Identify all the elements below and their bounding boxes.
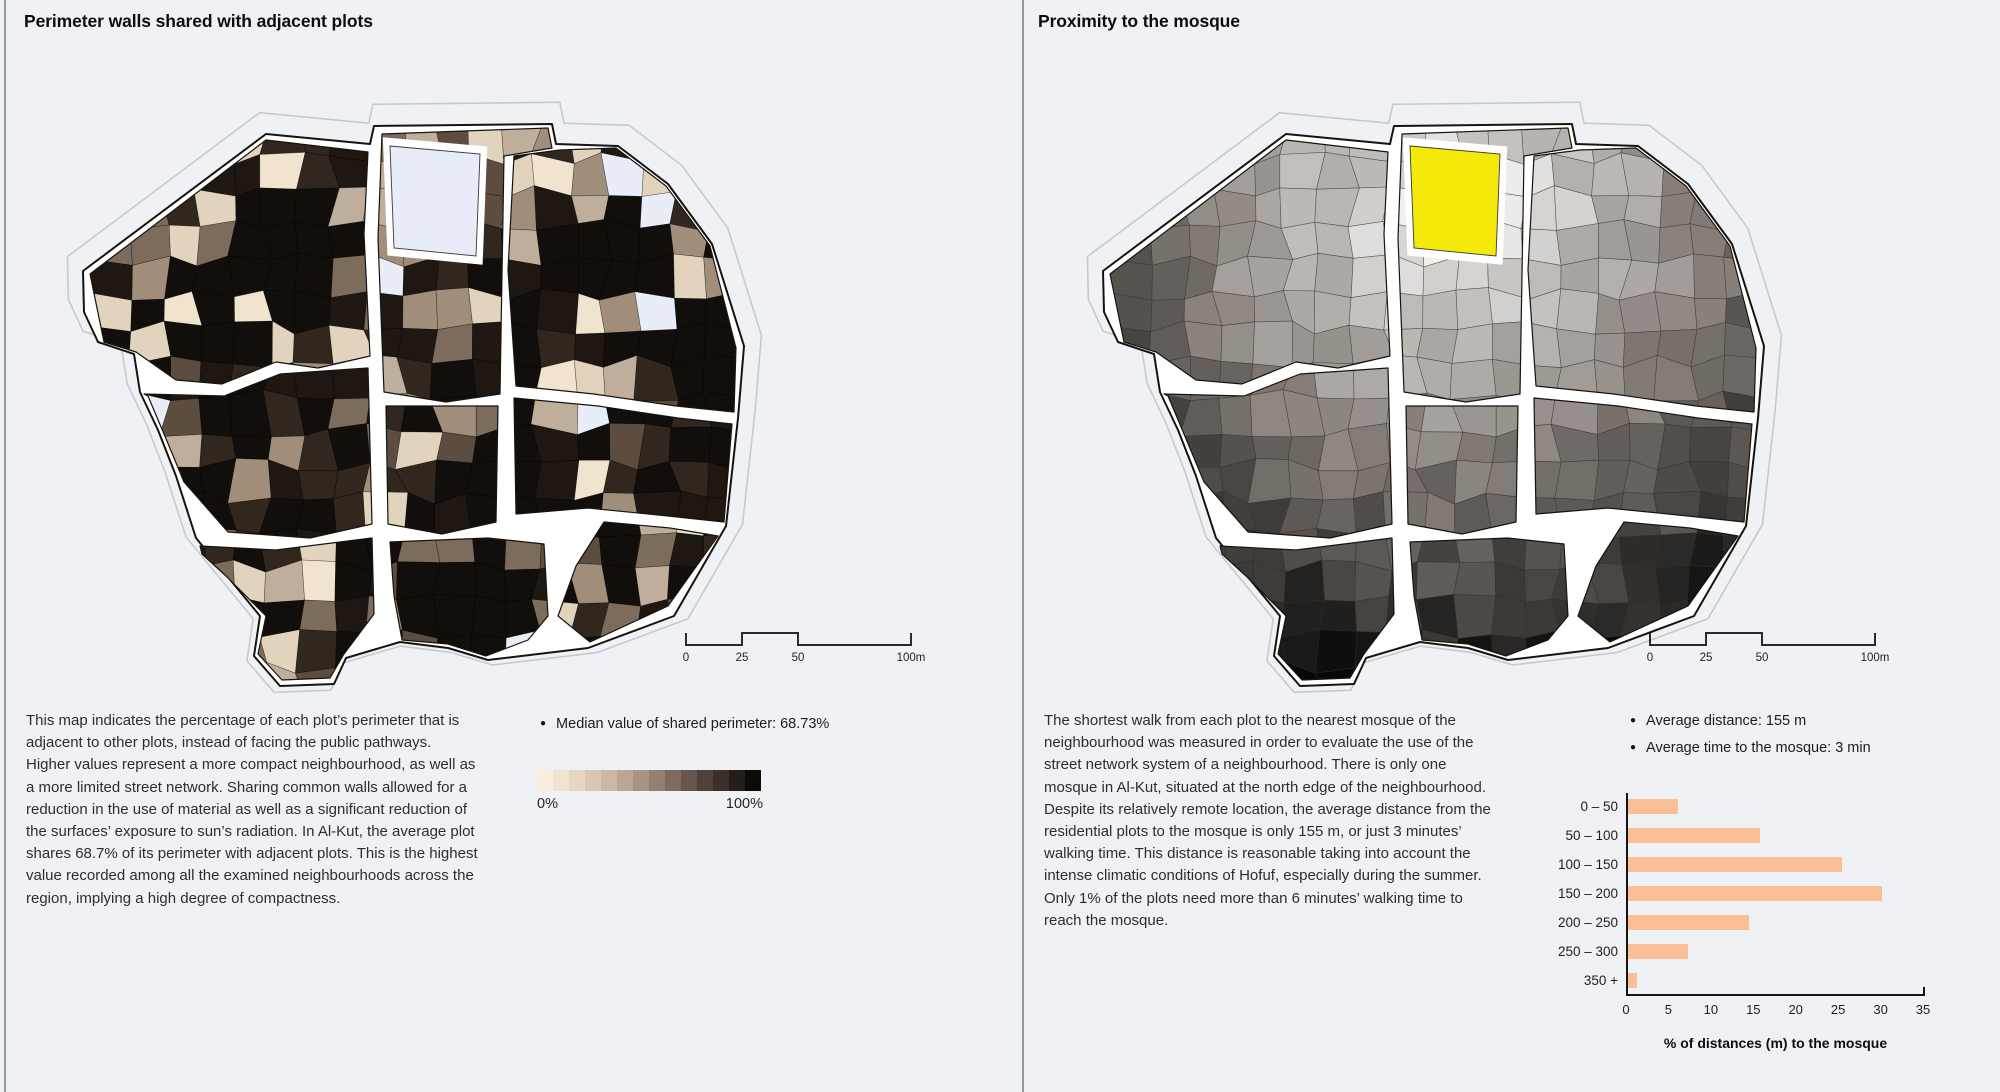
x-tick-label: 20: [1788, 1002, 1802, 1017]
x-tick-label: 5: [1665, 1002, 1672, 1017]
avg-distance-label: Average distance: 155 m: [1646, 711, 1806, 731]
color-scale-step: [697, 770, 713, 791]
left-panel-title: Perimeter walls shared with adjacent plo…: [24, 11, 373, 32]
mosque-proximity-map: [1048, 56, 1788, 706]
scale-bar-label: 100m: [897, 652, 926, 664]
scale-bar-label: 0: [683, 652, 689, 664]
panel-divider: [1022, 0, 1024, 1092]
bar: [1627, 944, 1688, 959]
median-legend: ● Median value of shared perimeter: 68.7…: [540, 714, 829, 734]
x-tick-label: 0: [1622, 1002, 1629, 1017]
page: Perimeter walls shared with adjacent plo…: [0, 0, 2000, 1092]
histogram-bars: 0 – 5050 – 100100 – 150150 – 200200 – 25…: [1548, 792, 1882, 995]
color-scale-step: [569, 770, 585, 791]
scale-bar-label: 100m: [1861, 652, 1890, 664]
perimeter-color-scale: [537, 770, 761, 791]
color-scale-step: [633, 770, 649, 791]
x-tick-label: 15: [1746, 1002, 1760, 1017]
bullet-icon: ●: [540, 714, 546, 734]
color-scale-step: [649, 770, 665, 791]
bar-row: 50 – 100: [1548, 821, 1882, 850]
color-scale-labels: 0% 100%: [537, 796, 763, 812]
bar-row: 100 – 150: [1548, 850, 1882, 879]
bar-row: 0 – 50: [1548, 792, 1882, 821]
bar: [1627, 886, 1882, 901]
scale-bar-label: 50: [1756, 652, 1769, 664]
bar: [1627, 915, 1749, 930]
bar-row: 350 +: [1548, 966, 1882, 995]
distance-histogram: 0 – 5050 – 100100 – 150150 – 200200 – 25…: [1548, 792, 1978, 1072]
right-scale-bar: 02550100m: [1642, 624, 1892, 666]
right-panel-title: Proximity to the mosque: [1038, 11, 1240, 32]
median-legend-label: Median value of shared perimeter: 68.73%: [556, 714, 829, 734]
x-tick-label: 35: [1916, 1002, 1930, 1017]
scale-bar-label: 0: [1647, 652, 1653, 664]
bullet-icon: ●: [1630, 738, 1636, 758]
right-description: The shortest walk from each plot to the …: [1044, 710, 1502, 932]
mosque-stats-legend: ● Average distance: 155 m ● Average time…: [1630, 711, 1871, 765]
mosque-plot: [1410, 146, 1500, 256]
left-border-line: [4, 0, 6, 1092]
bar-row: 200 – 250: [1548, 908, 1882, 937]
scale-bar-shape: [686, 633, 911, 645]
color-scale-step: [745, 770, 761, 791]
color-scale-step: [617, 770, 633, 791]
avg-time-legend: ● Average time to the mosque: 3 min: [1630, 738, 1871, 765]
bar-category-label: 350 +: [1548, 973, 1618, 988]
color-scale-step: [665, 770, 681, 791]
x-axis-end-tick: [1923, 987, 1925, 995]
bar: [1627, 828, 1760, 843]
x-tick-label: 30: [1873, 1002, 1887, 1017]
left-scale-bar: 02550100m: [678, 624, 928, 666]
bar-row: 250 – 300: [1548, 937, 1882, 966]
x-axis-line: [1626, 994, 1925, 996]
mosque-plot: [390, 146, 480, 256]
chart-x-axis-label: % of distances (m) to the mosque: [1626, 1035, 1925, 1051]
bar-category-label: 200 – 250: [1548, 915, 1618, 930]
shared-perimeter-map: [28, 56, 768, 706]
color-scale-step: [681, 770, 697, 791]
scale-bar-shape: [1650, 633, 1875, 645]
scale-max-label: 100%: [726, 796, 763, 812]
avg-distance-legend: ● Average distance: 155 m: [1630, 711, 1871, 738]
bar-category-label: 50 – 100: [1548, 828, 1618, 843]
color-scale-step: [729, 770, 745, 791]
bar-category-label: 0 – 50: [1548, 799, 1618, 814]
avg-time-label: Average time to the mosque: 3 min: [1646, 738, 1871, 758]
x-tick-label: 10: [1704, 1002, 1718, 1017]
scale-bar-label: 25: [736, 652, 749, 664]
scale-min-label: 0%: [537, 796, 558, 812]
left-description: This map indicates the percentage of eac…: [26, 710, 478, 910]
bullet-icon: ●: [1630, 711, 1636, 731]
bar-category-label: 100 – 150: [1548, 857, 1618, 872]
color-scale-step: [585, 770, 601, 791]
bar-category-label: 250 – 300: [1548, 944, 1618, 959]
bar-row: 150 – 200: [1548, 879, 1882, 908]
bar-category-label: 150 – 200: [1548, 886, 1618, 901]
color-scale-step: [601, 770, 617, 791]
color-scale-step: [553, 770, 569, 791]
bar: [1627, 799, 1678, 814]
y-axis-line: [1626, 793, 1628, 995]
bar: [1627, 973, 1637, 988]
scale-bar-label: 50: [792, 652, 805, 664]
bar: [1627, 857, 1842, 872]
x-tick-label: 25: [1831, 1002, 1845, 1017]
color-scale-step: [537, 770, 553, 791]
scale-bar-label: 25: [1700, 652, 1713, 664]
color-scale-step: [713, 770, 729, 791]
